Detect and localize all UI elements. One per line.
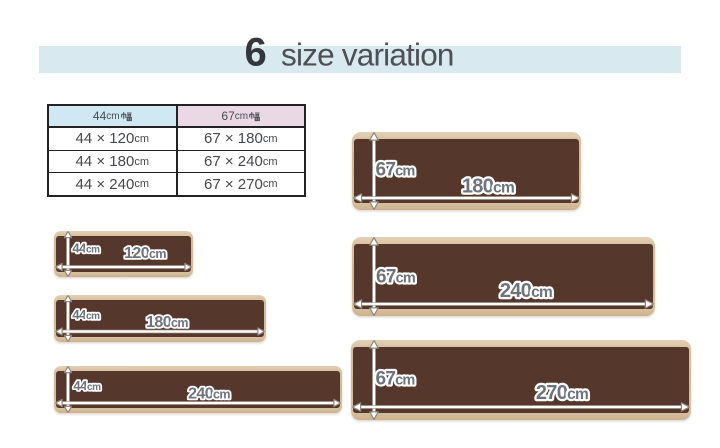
svg-text:180cm: 180cm [462,176,514,198]
svg-text:67cm: 67cm [376,159,415,180]
svg-text:180cm: 180cm [146,314,188,331]
svg-text:240cm: 240cm [188,385,230,402]
svg-text:67cm: 67cm [376,266,415,287]
svg-text:240cm: 240cm [500,280,552,302]
svg-text:120cm: 120cm [124,245,166,262]
svg-text:size variation: size variation [281,36,454,72]
svg-text:6: 6 [245,30,267,74]
svg-text:270cm: 270cm [536,382,588,404]
svg-text:67cm: 67cm [376,368,415,389]
